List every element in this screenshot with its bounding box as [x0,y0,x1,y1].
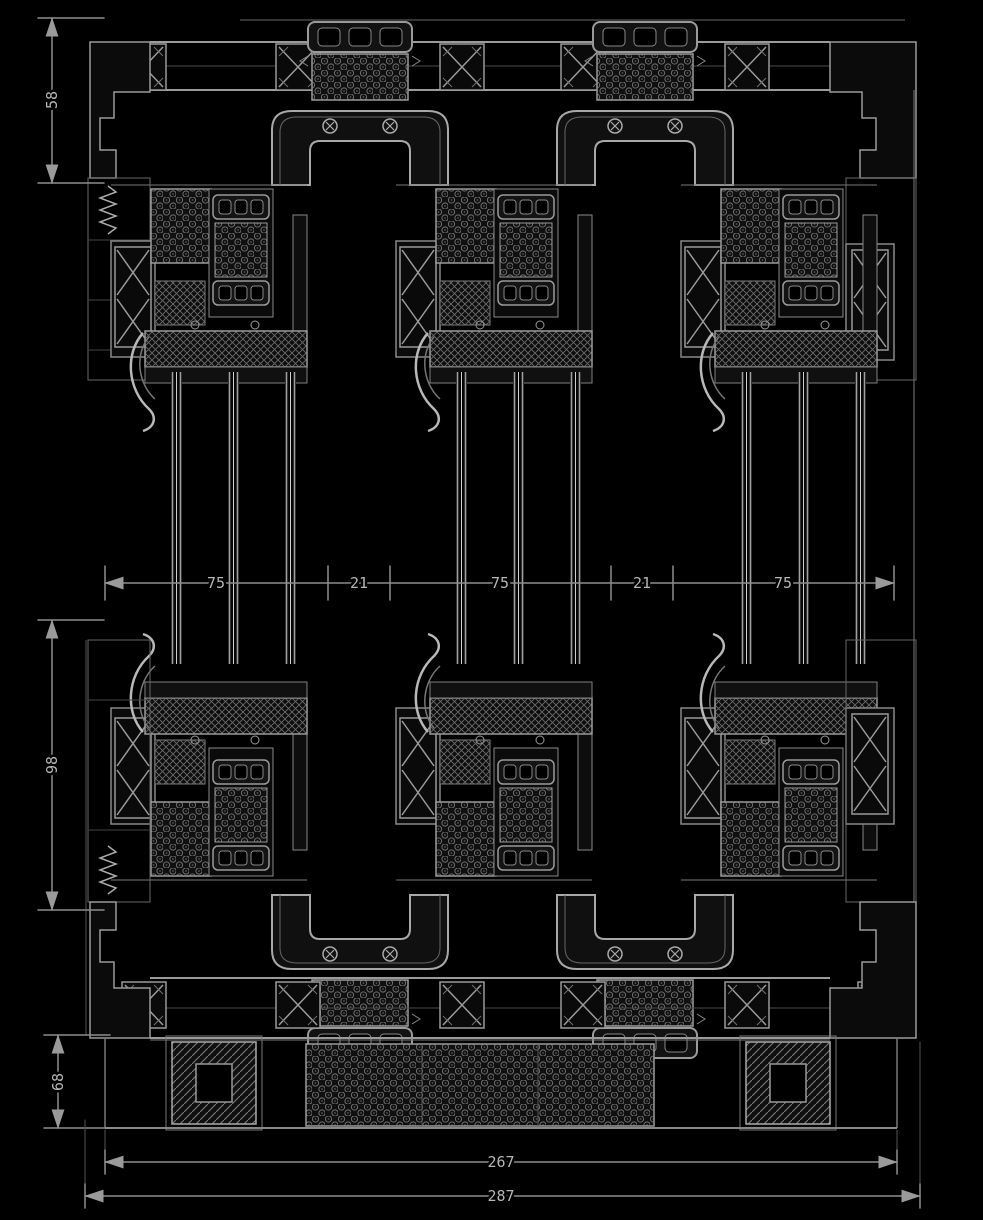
dim-sash3-width-label: 75 [774,574,792,592]
sill-assembly [105,1036,897,1130]
sill-insulation-slab [306,1044,654,1126]
dim-sash1-width-label: 75 [207,574,225,592]
dim-sill-height-label: 68 [49,1073,67,1091]
dim-coupler1-width-label: 21 [350,574,368,592]
dim-sash2-width-label: 75 [491,574,509,592]
dim-coupler2-width-label: 21 [633,574,651,592]
window-section-drawing: 58 98 68 75 21 75 21 [0,0,983,1220]
dim-head-height-label: 58 [43,91,61,109]
dim-inner-width-label: 267 [487,1153,514,1171]
dim-outer-width-label: 287 [487,1187,514,1205]
technical-drawing: 58 98 68 75 21 75 21 [0,0,983,1220]
dim-sash-height-label: 98 [43,756,61,774]
